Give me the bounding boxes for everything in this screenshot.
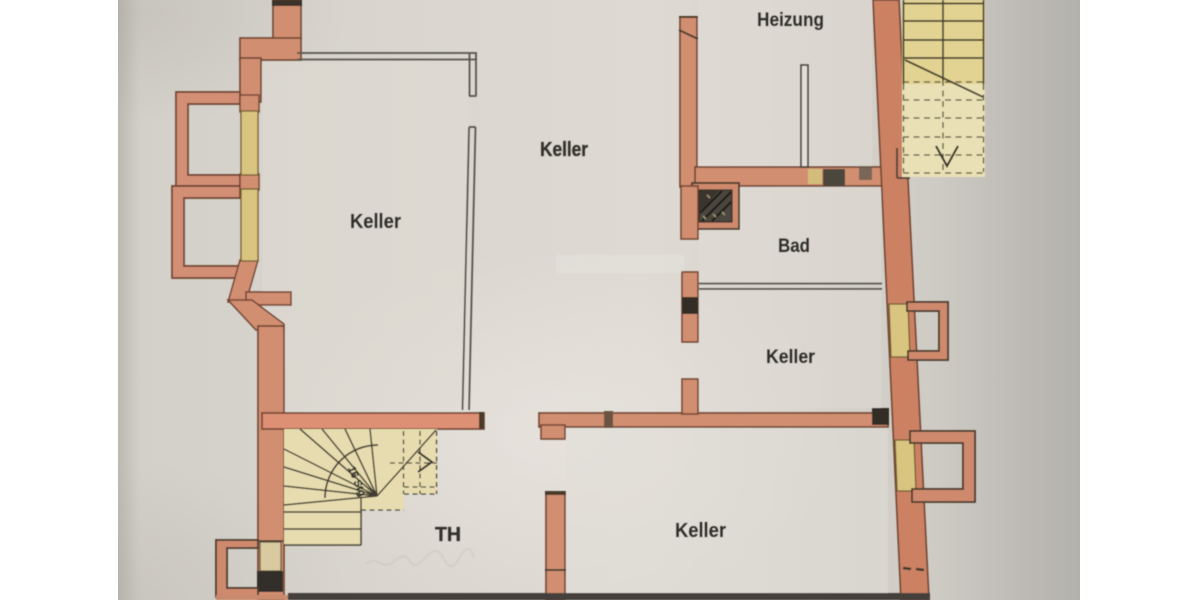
svg-text:Keller: Keller — [540, 139, 588, 161]
svg-text:Keller: Keller — [766, 346, 815, 368]
svg-text:Heizung: Heizung — [757, 9, 824, 31]
svg-text:Bad: Bad — [778, 235, 810, 257]
svg-text:Keller: Keller — [675, 519, 726, 542]
svg-text:TH: TH — [435, 524, 461, 546]
svg-text:Keller: Keller — [350, 210, 401, 233]
